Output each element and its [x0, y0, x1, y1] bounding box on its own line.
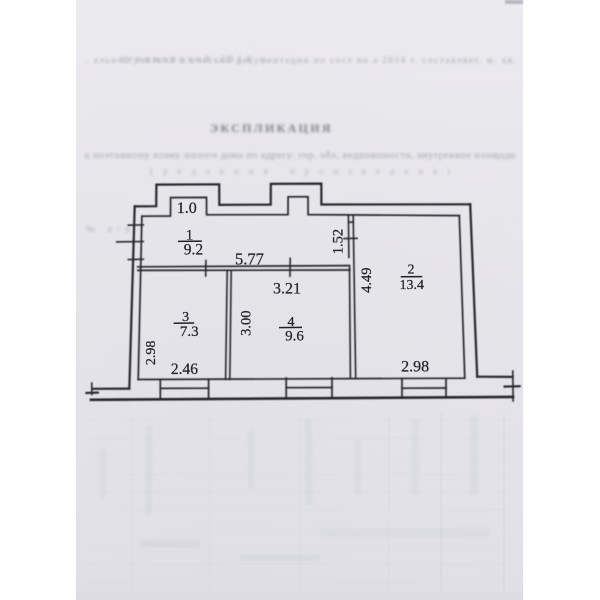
svg-text:3.21: 3.21: [273, 281, 301, 298]
svg-text:1.52: 1.52: [331, 229, 347, 254]
svg-text:3.00: 3.00: [238, 311, 254, 336]
svg-text:5.77: 5.77: [235, 250, 264, 269]
svg-text:9.2: 9.2: [184, 241, 203, 258]
svg-text:2.98: 2.98: [401, 359, 429, 376]
svg-text:1.0: 1.0: [177, 200, 197, 217]
svg-text:7.3: 7.3: [180, 324, 199, 340]
svg-text:13.4: 13.4: [400, 278, 425, 293]
svg-text:2.46: 2.46: [171, 361, 198, 378]
svg-text:9.6: 9.6: [285, 329, 304, 345]
svg-text:2.98: 2.98: [144, 341, 159, 366]
svg-text:к поэтажному плану жилого дома: к поэтажному плану жилого дома по адресу…: [85, 150, 515, 161]
svg-text:4.49: 4.49: [359, 268, 375, 293]
svg-text:2: 2: [408, 263, 415, 278]
svg-text:ЭКСПЛИКАЦИЯ: ЭКСПЛИКАЦИЯ: [210, 121, 332, 135]
